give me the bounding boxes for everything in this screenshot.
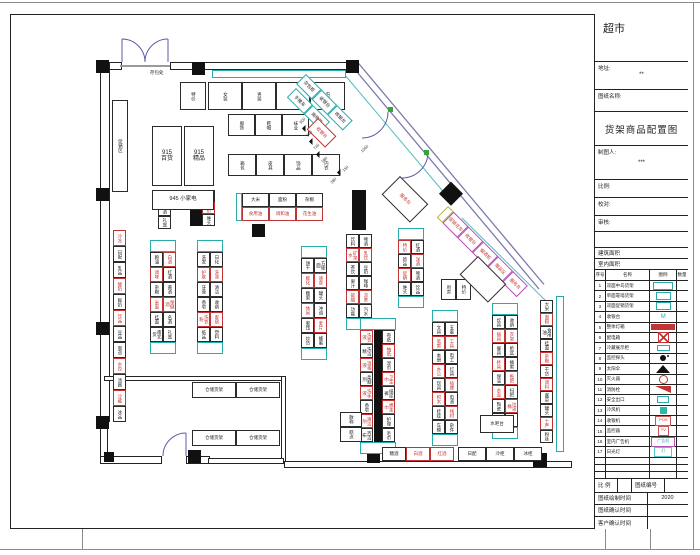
shelf-cell: 笔类 <box>432 336 445 350</box>
shelf-cell: 办公 <box>432 364 445 378</box>
draw-time-row: 图纸绘制时间 2020 <box>595 493 688 505</box>
legend-name: 监控探头 <box>606 354 651 363</box>
shelf-cell: 洗衣液 <box>360 330 373 344</box>
legend-name: 整体灯箱 <box>606 323 651 332</box>
shelf-cell: 脸盆 <box>505 343 518 357</box>
shelf-cell: 名酒 <box>163 312 176 327</box>
shelf-cell: 饼干 <box>301 258 314 273</box>
scale2-value <box>617 479 631 492</box>
shelf-cell: 棉柔巾 <box>382 400 395 414</box>
drawing-name-label: 图纸名称: <box>595 90 688 100</box>
shelf-cell: 促销 <box>398 268 411 282</box>
column-diamond <box>439 182 463 206</box>
shelf-endcap <box>150 342 176 354</box>
legend-symbol <box>650 354 677 363</box>
drawing-name-cell: 图纸名称: <box>595 90 688 112</box>
shelf-box: 调和油 <box>269 207 296 221</box>
indoor-area-label: 室内面积 <box>595 259 688 268</box>
legend-row: 5整体灯箱 <box>595 323 688 333</box>
drafter-label: 制图人: <box>595 146 688 156</box>
drawing-title-cell: 货架商品配置图 <box>595 112 688 146</box>
shelf-cell: 大米 <box>540 300 553 313</box>
shelf-cell: 糖果 <box>301 288 314 303</box>
shelf-cell: 蜂蜜 <box>314 333 327 348</box>
shelf-box: 红酒 <box>430 447 454 461</box>
solid-pier <box>352 190 366 230</box>
legend-symbol-adboard-icon: 广告机 <box>651 437 675 447</box>
shelf-cell: 工具 <box>445 336 458 350</box>
shelf-cell: 本册 <box>432 350 445 364</box>
legend-name: 室内广告机 <box>606 437 651 446</box>
address-cell: 地址: ** <box>595 62 688 90</box>
shelf-cell: 面粉 <box>540 313 553 326</box>
legend-name: 消防栓 <box>606 385 651 394</box>
scale-sheetno-row: 比 例 图纸编号 <box>595 479 688 493</box>
shelf-cell: 日配 <box>113 246 126 262</box>
shelf-cell: 果汁 <box>346 276 359 290</box>
legend-row: 13冷风机 <box>595 406 688 416</box>
shelf-cell: 卷纸 <box>382 330 395 344</box>
legend-qty <box>677 302 688 311</box>
legend-no: 14 <box>595 416 606 425</box>
legend-name <box>606 465 651 471</box>
shelf-box: 服饰 <box>228 114 255 136</box>
shelf-cell: 礼盒 <box>163 327 176 342</box>
shelf-box: 仓储货架 <box>192 430 236 446</box>
shelf-cell: 垃圾桶 <box>505 399 518 413</box>
shelf-box: 食用油 <box>242 207 269 221</box>
shelf-cell: 家居 <box>210 312 223 327</box>
legend-symbol <box>650 406 677 415</box>
shelf-cell: 鲜奶 <box>113 294 126 310</box>
legend-col-name: 名称 <box>605 270 649 280</box>
legend-name: 双面中岛货架 <box>606 281 651 290</box>
column <box>96 188 109 201</box>
shelf-box: 甩卖 <box>441 279 456 300</box>
shelf-cell: 冰品 <box>113 406 126 422</box>
building-area-cell: 建筑面积 <box>595 248 688 259</box>
drafter-cell: 制图人: *** <box>595 146 688 180</box>
shelf-box: 糖酒 <box>382 447 406 461</box>
shelf-cell: 米面 <box>150 297 163 312</box>
legend-qty <box>677 437 688 446</box>
shelf-cell: 挂面 <box>540 339 553 352</box>
legend-no: 3 <box>595 302 606 311</box>
legend-qty <box>677 323 688 332</box>
store-name: 超市 <box>595 14 688 36</box>
shelf-box: 鞋帽 <box>255 114 282 136</box>
legend-symbol: POS <box>650 416 677 425</box>
legend-no: 13 <box>595 406 606 415</box>
column <box>96 60 109 73</box>
legend-no <box>595 458 606 464</box>
legend-symbol-register-icon: POS <box>655 416 671 426</box>
legend-row: 4收银台M <box>595 312 688 322</box>
shelf-box: 大米 <box>242 193 269 207</box>
shelf-cell: 红酒 <box>163 267 176 282</box>
legend-row: 3双面促销货架 <box>595 302 688 312</box>
legend-row: 2单面靠墙货架 <box>595 291 688 301</box>
legend-symbol <box>650 333 677 342</box>
scale2-label: 比 例 <box>595 479 617 492</box>
legend-name: 监控器 <box>606 426 651 435</box>
shelf-cell: 保温 <box>492 371 505 385</box>
legend-row: 15监控器TV <box>595 426 688 436</box>
legend-symbol-exit-icon <box>657 396 669 403</box>
shelf-endcap <box>197 342 223 354</box>
shelf-box: 仓储货架 <box>236 430 280 446</box>
wall <box>281 376 286 462</box>
legend-symbol-camera-icon <box>660 355 666 361</box>
shelf-endcap <box>301 246 327 258</box>
shelf-box: 仓储货架 <box>192 382 236 398</box>
shelf-cell: 洗洁精 <box>360 344 373 358</box>
shelf-cell: 蜜饯 <box>301 318 314 333</box>
shelf-cell: 调料 <box>540 378 553 391</box>
legend-table: 1双面中岛货架2单面靠墙货架3双面促销货架4收银台M5整体灯箱6配电箱7冷藏展示… <box>595 281 688 479</box>
shelf-cell: 饮料 <box>346 234 359 248</box>
shelf-cell: 方便面 <box>314 258 327 273</box>
legend-qty <box>677 395 688 404</box>
shelf-cell: 湿巾 <box>382 358 395 372</box>
shelf-cell: 积木 <box>432 392 445 406</box>
legend-name: 太阳伞 <box>606 364 651 373</box>
legend-symbol <box>650 458 677 464</box>
legend-name: 冷藏展示柜 <box>606 343 651 352</box>
legend-symbol: M <box>650 312 677 321</box>
legend-symbol <box>650 343 677 352</box>
confirm-time-value <box>647 505 687 516</box>
shelf-cell: 白酒 <box>163 252 176 267</box>
legend-row: 16室内广告机广告机 <box>595 437 688 447</box>
legend-symbol <box>650 472 677 478</box>
shelf-cell: 保健酒 <box>163 297 176 312</box>
legend-no: 11 <box>595 385 606 394</box>
shelf-cell: 清洁 <box>210 282 223 297</box>
shelf-cell: 礼盒 <box>158 216 171 229</box>
shelf-cell: 冷藏 <box>113 390 126 406</box>
legend-name: 灭火器 <box>606 375 651 384</box>
shelf-cell: 杂件 <box>445 420 458 434</box>
customer-time-value <box>647 517 687 529</box>
legend-row: 12安全出口 <box>595 395 688 405</box>
wall <box>104 376 284 381</box>
shelf-cell: 矿泉水 <box>346 248 359 262</box>
legend-qty <box>677 406 688 415</box>
shelf-cell: 堆头 <box>202 214 215 226</box>
legend-name <box>606 458 651 464</box>
legend-qty <box>677 354 688 363</box>
legend-qty <box>677 472 688 478</box>
indoor-area-cell: 室内面积 <box>595 259 688 270</box>
drawing-title: 货架商品配置图 <box>595 112 688 145</box>
shelf-box: 945 小家电 <box>152 190 214 210</box>
solid-pier <box>374 330 382 442</box>
shelf-box: 女装 <box>208 82 242 110</box>
shelf-cell: 香皂 <box>197 297 210 312</box>
legend-name: 收银台 <box>606 312 651 321</box>
shelf-cell: 功能 <box>346 304 359 318</box>
legend-row: 7冷藏展示柜 <box>595 343 688 353</box>
legend-no <box>595 472 606 478</box>
check-cell: 校对: <box>595 198 688 216</box>
legend-row: 11消防栓 <box>595 385 688 395</box>
shelf-endcap <box>301 348 327 360</box>
shelf-cell: 干货 <box>540 365 553 378</box>
column <box>346 60 359 73</box>
shelf-cell: 插座 <box>445 378 458 392</box>
legend-no: 9 <box>595 364 606 373</box>
legend-no: 8 <box>595 354 606 363</box>
shelf-endcap <box>197 240 223 252</box>
shelf-cell: 乳品 <box>113 262 126 278</box>
scale-label: 比例: <box>595 180 688 190</box>
shelf-cell: 土产 <box>540 417 553 430</box>
shelf-box: 饰品 <box>284 154 312 176</box>
shelf-cell: 膨化 <box>301 273 314 288</box>
legend-no: 1 <box>595 281 606 290</box>
store-name-cell: 超市 <box>595 14 688 62</box>
shelf-cell: 水壶 <box>492 385 505 399</box>
shelf-cell: 卫生巾 <box>382 372 395 386</box>
shelf-cell: 锅具 <box>492 329 505 343</box>
legend-name: 单面靠墙货架 <box>606 291 651 300</box>
legend-symbol: TV <box>650 426 677 435</box>
shelf-cell: 洗发 <box>197 252 210 267</box>
shelf-endcap <box>150 240 176 252</box>
shelf-cell: 衣架 <box>505 329 518 343</box>
legend-symbol-coldcab-icon <box>657 345 670 351</box>
shelf-cell: 啤酒 <box>411 268 424 282</box>
shelf-box: 915 百货 <box>152 126 182 186</box>
legend-symbol: 灯 <box>650 447 677 456</box>
shelf-endcap <box>398 228 424 240</box>
shelf-endcap <box>212 70 346 78</box>
legend-symbol-flag-icon <box>655 386 671 393</box>
shelf-cell: 冷冻 <box>113 230 126 246</box>
legend-no: 6 <box>595 333 606 342</box>
shelf-box: 花生油 <box>296 207 323 221</box>
confirm-time-row: 图纸确认时间 <box>595 505 688 517</box>
shelf-box: 面粉 <box>269 193 296 207</box>
check-label: 校对: <box>595 198 688 208</box>
legend-name: 配电箱 <box>606 333 651 342</box>
shelf-cell: 凉茶 <box>359 290 372 304</box>
shelf-cell: 拖把 <box>505 371 518 385</box>
shelf-cell: 杂粮 <box>150 282 163 297</box>
title-block: 超市 地址: ** 图纸名称: 货架商品配置图 制图人: *** 比例: 校对:… <box>594 14 688 529</box>
shelf-cell: 红酒 <box>411 240 424 254</box>
shelf-cell: 娃娃 <box>432 406 445 420</box>
legend-qty <box>677 291 688 300</box>
shelf-cell: 电池 <box>445 392 458 406</box>
shelf-endcap <box>432 434 458 446</box>
door-sensor <box>424 150 429 155</box>
legend-qty <box>677 333 688 342</box>
empty-cell <box>595 232 688 248</box>
legend-qty <box>677 447 688 456</box>
shelf-cell: 护肤 <box>197 267 210 282</box>
shelf-box: 散称 <box>340 412 362 427</box>
legend-row <box>595 458 688 465</box>
shelf-cell: 新品 <box>398 254 411 268</box>
legend-col-symbol: 图例 <box>649 270 676 280</box>
shelf-cell: 杂粮 <box>540 352 553 365</box>
address-value: ** <box>595 72 688 78</box>
legend-name: 收银机 <box>606 416 651 425</box>
legend-symbol <box>650 395 677 404</box>
shelf-cell: 收纳 <box>210 297 223 312</box>
legend-col-qty: 数量 <box>676 270 687 280</box>
shelf-cell: 饮品 <box>411 282 424 296</box>
wall <box>100 62 110 422</box>
drafter-value: *** <box>595 160 688 166</box>
legend-row <box>595 472 688 479</box>
legend-row: 6配电箱 <box>595 333 688 343</box>
legend-name <box>606 472 651 478</box>
drawing-sheet: 冷冻日配乳品酸奶鲜奶饮品豆品面点水饺汤圆冷藏冰品粮油调味杂粮米面挂面南北货白酒红… <box>0 0 700 555</box>
shelf-cell: 碳酸 <box>346 290 359 304</box>
shelf-cell: 罐头 <box>314 288 327 303</box>
legend-row: 9太阳伞 <box>595 364 688 374</box>
column <box>252 224 265 237</box>
legend-qty <box>677 426 688 435</box>
legend-symbol <box>650 323 677 332</box>
legend-symbol <box>650 465 677 471</box>
shelf-cell: 炒货 <box>301 333 314 348</box>
legend-no: 15 <box>595 426 606 435</box>
shelf-box: 特价 <box>180 82 206 110</box>
shelf-cell: 罐头 <box>540 404 553 417</box>
shelf-cell: 柔顺剂 <box>360 372 373 386</box>
draw-time-label: 图纸绘制时间 <box>595 493 647 504</box>
legend-name: 日光灯 <box>606 447 651 456</box>
shelf-box: 促销区 <box>112 100 128 192</box>
draw-time-value: 2020 <box>647 493 687 504</box>
legend-symbol <box>650 385 677 394</box>
sheet-no-value <box>664 479 687 492</box>
shelf-cell: 豆奶 <box>359 262 372 276</box>
legend-symbol: 广告机 <box>650 437 677 446</box>
confirm-time-label: 图纸确认时间 <box>595 505 647 516</box>
legend-symbol <box>650 375 677 384</box>
shelf-endcap <box>492 303 518 315</box>
legend-symbol <box>650 302 677 311</box>
shelf-cell: 玩具 <box>432 378 445 392</box>
customer-time-row: 客户确认时间 <box>595 517 688 529</box>
legend-qty <box>677 385 688 394</box>
legend-symbol-shelf-m-icon <box>656 302 671 310</box>
wall <box>208 458 284 464</box>
legend-no: 2 <box>595 291 606 300</box>
shelf-box: 冷柜 <box>486 447 514 461</box>
legend-symbol <box>650 364 677 373</box>
column <box>192 62 205 75</box>
legend-symbol-shelf-l-icon <box>653 282 673 290</box>
shelf-cell: 速食 <box>314 273 327 288</box>
legend-no: 4 <box>595 312 606 321</box>
shelf-cell: 休闲 <box>301 303 314 318</box>
legend-no: 17 <box>595 447 606 456</box>
shelf-box: 白酒 <box>406 447 430 461</box>
review-cell: 审核: <box>595 216 688 232</box>
shelf-cell: 电工 <box>445 350 458 364</box>
shelf-cell: 洋酒 <box>411 254 424 268</box>
legend-row <box>595 465 688 472</box>
legend-no: 16 <box>595 437 606 446</box>
legend-no: 10 <box>595 375 606 384</box>
building-area-label: 建筑面积 <box>595 248 688 257</box>
shelf-cell: 面点 <box>113 342 126 358</box>
shelf-cell: 调味 <box>150 267 163 282</box>
legend-symbol-shelf-m-icon <box>656 292 671 300</box>
shelf-cell: 五金 <box>445 322 458 336</box>
shelf-cell: 陶瓷 <box>492 399 505 413</box>
scale-cell: 比例: <box>595 180 688 198</box>
address-label: 地址: <box>595 62 688 72</box>
shelf-cell: 酸奶 <box>113 278 126 294</box>
legend-no: 12 <box>595 395 606 404</box>
shelf-cell: 水饺 <box>113 358 126 374</box>
diagonal-wall <box>352 62 544 290</box>
shelf-box: 冰柜 <box>514 447 542 461</box>
shelf-cell: 洗衣粉 <box>197 312 210 327</box>
shelf-cell: 塑料 <box>210 327 223 342</box>
shelf-cell: 粉丝 <box>540 430 553 443</box>
shelf-cell: 灯具 <box>445 364 458 378</box>
shelf-cell: 特价 <box>398 240 411 254</box>
shelf-cell: 汤圆 <box>113 374 126 390</box>
shelf-cell: 杯具 <box>492 357 505 371</box>
shelf-cell: 乳饮 <box>359 248 372 262</box>
legend-symbol-ring-icon <box>659 375 668 384</box>
legend-symbol-umbrella-icon <box>656 365 670 373</box>
legend-no: 7 <box>595 343 606 352</box>
sheet-no-label: 图纸编号 <box>631 479 664 492</box>
shelf-cell: 粮油 <box>150 252 163 267</box>
review-label: 审核: <box>595 216 688 226</box>
shelf-cell: 纸尿裤 <box>382 386 395 400</box>
shelf-endcap <box>398 296 424 308</box>
wall <box>284 461 572 468</box>
legend-row: 10灭火器 <box>595 375 688 385</box>
shelf-cell: 豆品 <box>113 326 126 342</box>
shelf-cell: 食用油 <box>540 326 553 339</box>
shelf-endcap <box>432 310 458 322</box>
shelf-box: 男装 <box>242 82 276 110</box>
column <box>96 322 109 335</box>
plan-annotation: 存包处 <box>150 70 164 76</box>
shelf-cell: 啤酒 <box>359 234 372 248</box>
customer-time-label: 客户确认时间 <box>595 517 647 529</box>
column <box>96 416 109 429</box>
shelf-cell: 扫把 <box>505 385 518 399</box>
legend-qty <box>677 375 688 384</box>
shelf-cell: 炊具 <box>492 315 505 329</box>
legend-qty <box>677 465 688 471</box>
shelf-cell: 毛巾 <box>382 428 395 442</box>
shelf-cell: 汽水 <box>359 304 372 318</box>
shelf-cell: 线材 <box>445 406 458 420</box>
legend-no: 5 <box>595 323 606 332</box>
shelf-box: 水吧台 <box>480 415 514 433</box>
shelf-cell: 消毒液 <box>360 358 373 372</box>
shelf-cell: 堆头 <box>398 282 411 296</box>
legend-symbol-coldroom-icon <box>660 407 667 414</box>
shelf-cell: 牙膏 <box>197 282 210 297</box>
shelf-cell: 抽纸 <box>382 344 395 358</box>
shelf-box: 皮具 <box>256 154 284 176</box>
